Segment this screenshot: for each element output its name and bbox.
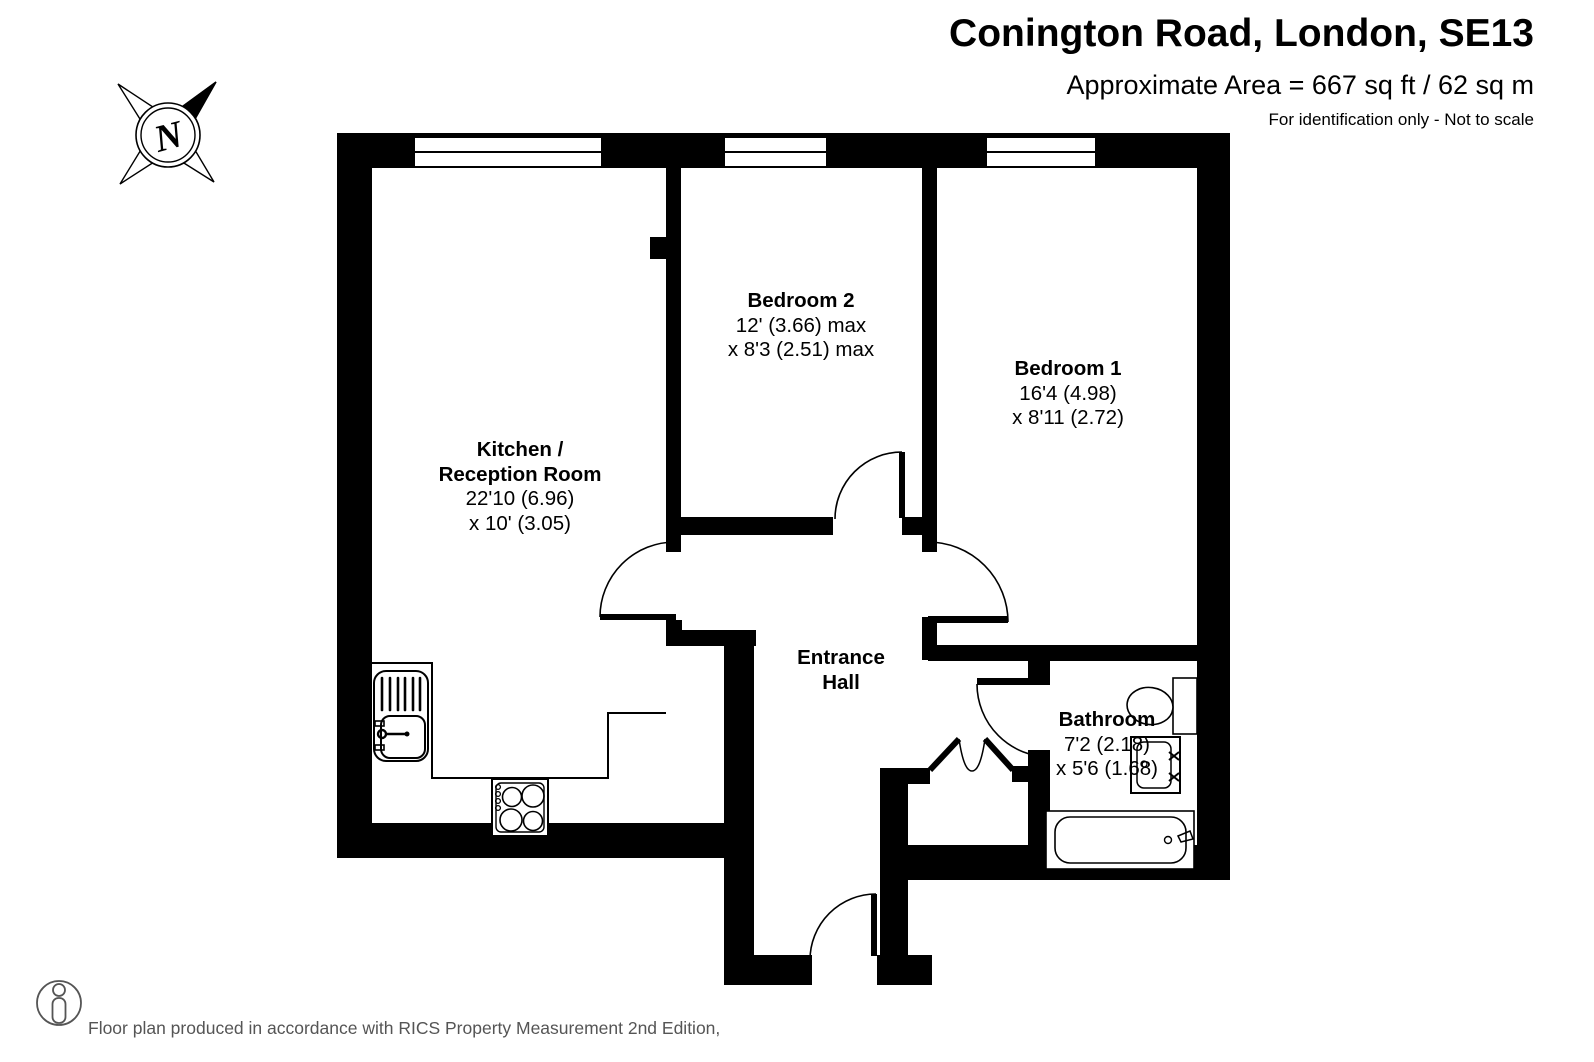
compass-north-label: N: [149, 113, 189, 161]
approximate-area: Approximate Area = 667 sq ft / 62 sq m: [949, 70, 1534, 101]
bathroom-door-arc: [977, 684, 1050, 757]
wall-bed1-bed2-divider: [922, 168, 937, 552]
bathroom-title: Bathroom: [1056, 708, 1158, 733]
wall-left: [337, 133, 372, 858]
bedroom1-dim2: x 8'11 (2.72): [1012, 406, 1124, 431]
kitchen-title-line1: Kitchen /: [439, 438, 602, 463]
bedroom2-door-leaf: [899, 452, 905, 518]
window-bedroom1: [985, 136, 1097, 168]
wall-bed2-bottom: [681, 517, 833, 535]
bifold-door-curve: [959, 739, 985, 771]
bifold-door-left: [930, 739, 959, 770]
kitchen-dim1: 22'10 (6.96): [439, 487, 602, 512]
wall-bottom-right: [908, 845, 1212, 880]
bathroom-door-leaf: [977, 678, 1050, 685]
bedroom1-title: Bedroom 1: [1012, 357, 1124, 382]
entrance-hall-line1: Entrance: [797, 646, 885, 671]
bedroom2-door-arc: [835, 452, 902, 519]
bedroom1-dim1: 16'4 (4.98): [1012, 382, 1124, 407]
sink-unit: [374, 671, 428, 761]
front-door-leaf: [871, 894, 877, 956]
label-bathroom: Bathroom 7'2 (2.18) x 5'6 (1.68): [1056, 708, 1158, 782]
kitchen-door-arc: [600, 542, 675, 617]
sink-basin: [381, 716, 425, 758]
wall-entrance-left: [724, 630, 754, 985]
person-icon: [37, 981, 81, 1025]
front-door-arc: [810, 894, 876, 960]
label-kitchen: Kitchen / Reception Room 22'10 (6.96) x …: [439, 438, 602, 536]
label-bedroom1: Bedroom 1 16'4 (4.98) x 8'11 (2.72): [1012, 357, 1124, 431]
label-bedroom2: Bedroom 2 12' (3.66) max x 8'3 (2.51) ma…: [728, 289, 874, 363]
wall-right: [1197, 133, 1230, 880]
bedroom2-title: Bedroom 2: [728, 289, 874, 314]
bedroom1-door-leaf: [928, 616, 1008, 623]
wall-entrance-bottom-right: [877, 955, 932, 985]
sink-tap: [375, 721, 410, 750]
wall-cupboard-left: [880, 768, 908, 955]
compass: N: [118, 82, 216, 184]
kitchen-title-line2: Reception Room: [439, 463, 602, 488]
property-title: Conington Road, London, SE13: [949, 12, 1534, 56]
kitchen-door-leaf: [600, 614, 676, 620]
bathroom-dim2: x 5'6 (1.68): [1056, 757, 1158, 782]
bath-drain: [1165, 837, 1172, 844]
kitchen-dim2: x 10' (3.05): [439, 512, 602, 537]
sink-drainer: [382, 678, 420, 710]
hob-knobs: [496, 785, 501, 811]
compass-star: [118, 82, 216, 184]
title-block: Conington Road, London, SE13 Approximate…: [949, 12, 1534, 130]
wall-kitchen-bed2-divider: [666, 168, 681, 552]
compass-north-pointer: [168, 82, 216, 135]
footer-line1: Floor plan produced in accordance with R…: [88, 1018, 881, 1039]
wall-bed2-door-stub: [902, 517, 922, 535]
bedroom2-dim1: 12' (3.66) max: [728, 314, 874, 339]
kitchen-counter: [372, 663, 666, 778]
scale-disclaimer: For identification only - Not to scale: [949, 110, 1534, 130]
bath-tap: [1178, 831, 1193, 842]
window-kitchen: [413, 136, 603, 168]
floorplan-page: Conington Road, London, SE13 Approximate…: [0, 0, 1594, 1062]
window-bedroom2: [723, 136, 828, 168]
wall-divider-stub: [650, 237, 666, 259]
bedroom2-dim2: x 8'3 (2.51) max: [728, 338, 874, 363]
label-entrance-hall: Entrance Hall: [797, 646, 885, 695]
bifold-door-right: [985, 739, 1013, 770]
toilet-cistern: [1173, 678, 1197, 734]
footer: Floor plan produced in accordance with R…: [88, 976, 881, 1062]
wall-kitchen-bottom: [337, 823, 752, 858]
wall-cupboard-right-stub: [1012, 766, 1042, 782]
wall-cupboard-left-stub: [880, 768, 930, 784]
wall-bathroom-top: [928, 645, 1197, 661]
basin-taps: [1169, 752, 1179, 781]
wall-bathroom-left-lower: [1028, 750, 1050, 845]
bathroom-dim1: 7'2 (2.18): [1056, 733, 1158, 758]
wall-hall-left: [666, 630, 756, 646]
bedroom1-door-arc: [928, 542, 1008, 622]
entrance-hall-line2: Hall: [797, 671, 885, 696]
